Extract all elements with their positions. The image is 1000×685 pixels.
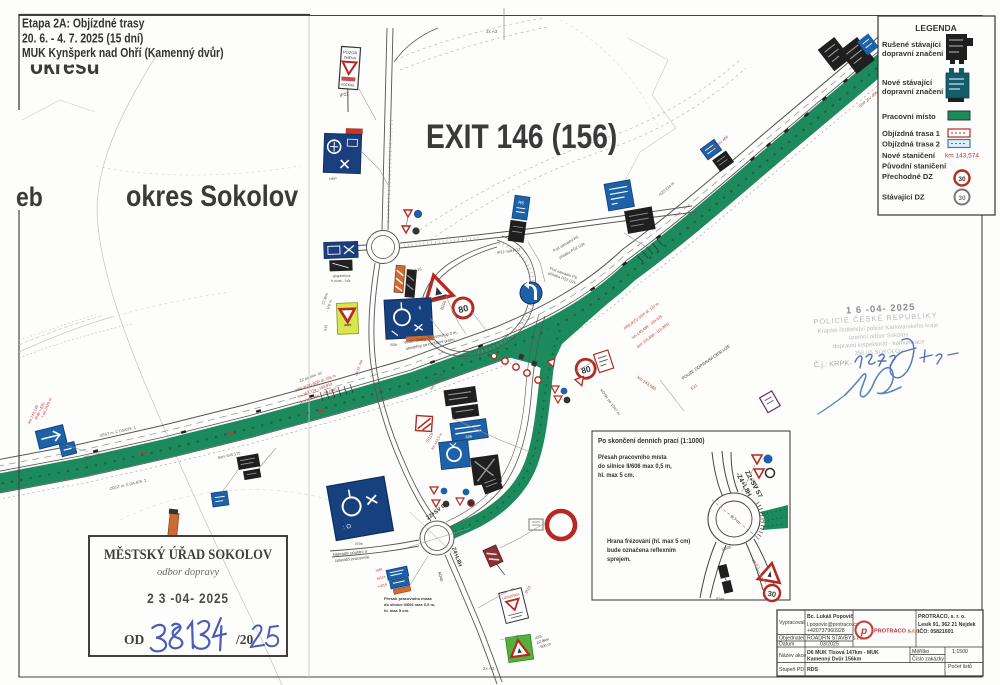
svg-text:PROTRACO, s. r. o.: PROTRACO, s. r. o. [918,614,966,620]
svg-text:Nové staničení: Nové staničení [882,151,936,160]
svg-text:IČO: 05821601: IČO: 05821601 [918,628,954,635]
svg-text:/20: /20 [235,632,254,647]
svg-text:EXIT 146 (156): EXIT 146 (156) [426,118,617,156]
svg-text:30: 30 [958,176,966,183]
svg-text:odbor dopravy: odbor dopravy [157,567,219,578]
svg-text:30: 30 [767,589,777,599]
svg-text:Měřítko: Měřítko [912,649,929,655]
svg-text:30: 30 [958,195,966,202]
svg-text:Kamenný Dvůr 156km: Kamenný Dvůr 156km [807,656,862,663]
svg-text:LEGENDA: LEGENDA [915,23,957,33]
svg-text:gogubelnce: gogubelnce [333,274,351,278]
svg-text:Počet listů: Počet listů [948,663,972,670]
svg-text:Hrana frézování (hl. max 5 cm): Hrana frézování (hl. max 5 cm) [607,538,690,546]
svg-text:sprejem.: sprejem. [607,556,631,564]
svg-text:Přesah pracovního místa: Přesah pracovního místa [384,596,432,601]
svg-text:2 3 -04- 2025: 2 3 -04- 2025 [147,590,229,606]
svg-text:Stávající DZ: Stávající DZ [882,193,925,202]
svg-text:do silnice II/606 max 0,5 m,: do silnice II/606 max 0,5 m, [598,463,672,471]
svg-text:6: 6 [418,305,421,311]
svg-text:Pracovní místo: Pracovní místo [882,112,936,121]
svg-text:Rušené stávající: Rušené stávající [882,40,942,49]
svg-text:PROTRACO s.r.o.: PROTRACO s.r.o. [874,629,921,635]
svg-text:Bc. Lukáš Popovič: Bc. Lukáš Popovič [807,614,853,620]
svg-text:1:1500: 1:1500 [952,649,968,655]
svg-text:Po skončení denních prací (1:1: Po skončení denních prací (1:1000) [598,438,705,446]
svg-text:IS9b: IS9b [355,542,363,546]
svg-text:IS9b: IS9b [390,343,397,347]
svg-text:Přechodné DZ: Přechodné DZ [882,172,933,181]
svg-text:Číslo zakázky: Číslo zakázky [912,656,944,663]
svg-text:dopravní značení: dopravní značení [882,87,944,96]
svg-text:Stupeň PD: Stupeň PD [779,667,804,673]
svg-text:Původní staničení: Původní staničení [882,162,947,171]
svg-text:dopravní značení: dopravní značení [882,49,944,58]
svg-text:Objízdná trasa 1: Objízdná trasa 1 [882,129,940,138]
svg-text:HKP: HKP [329,177,337,181]
svg-text:bude označena reflexním: bude označena reflexním [607,547,676,555]
svg-text:eb: eb [16,182,43,212]
svg-text:okres Sokolov: okres Sokolov [126,179,299,213]
svg-text:20. 6. - 4. 7. 2025 (15 dní): 20. 6. - 4. 7. 2025 (15 dní) [22,31,143,45]
svg-text:p: p [860,626,867,637]
svg-text:OD: OD [124,632,145,647]
svg-text:Vypracoval: Vypracoval [779,620,804,626]
svg-text:Objízdná trasa 2: Objízdná trasa 2 [882,140,940,149]
svg-text:03/2025: 03/2025 [820,642,839,648]
svg-text:Název akce: Název akce [779,653,806,659]
svg-text:Etapa 2A: Objízdné trasy: Etapa 2A: Objízdné trasy [22,16,145,30]
svg-text:MĚSTSKÝ ÚŘAD SOKOLOV: MĚSTSKÝ ÚŘAD SOKOLOV [104,545,272,562]
svg-text:+420737960928: +420737960928 [807,628,845,634]
svg-text:Nové stávající: Nové stávající [882,78,933,87]
svg-text:B24a: B24a [716,597,724,601]
svg-text:Lesík 91, 362 21 Nejdek: Lesík 91, 362 21 Nejdek [918,622,976,628]
svg-text:2x A3: 2x A3 [483,666,495,671]
svg-text:hl. max 5 cm.: hl. max 5 cm. [598,472,634,480]
svg-text:MUK Kynšperk nad Ohří (Kamenný: MUK Kynšperk nad Ohří (Kamenný dvůr) [22,46,224,60]
svg-text:hl. max 5 cm.: hl. max 5 cm. [384,608,409,613]
svg-text:tr-ncotr - ľu3r: tr-ncotr - ľu3r [331,279,352,283]
svg-text:RDS: RDS [807,667,818,673]
svg-text:Přesah pracovního místa: Přesah pracovního místa [598,454,667,462]
svg-text:ZMĚNA: ZMĚNA [343,55,356,61]
svg-text:D6 MUK Tisová 147km - MUK: D6 MUK Tisová 147km - MUK [807,650,879,656]
svg-text:2x A3: 2x A3 [486,29,498,34]
svg-text:Datum: Datum [779,642,794,648]
svg-text:km 143,574: km 143,574 [945,153,979,160]
svg-text:do silnice II/606 max 0,5 m,: do silnice II/606 max 0,5 m, [384,602,435,607]
svg-text:POZOR: POZOR [343,50,358,56]
